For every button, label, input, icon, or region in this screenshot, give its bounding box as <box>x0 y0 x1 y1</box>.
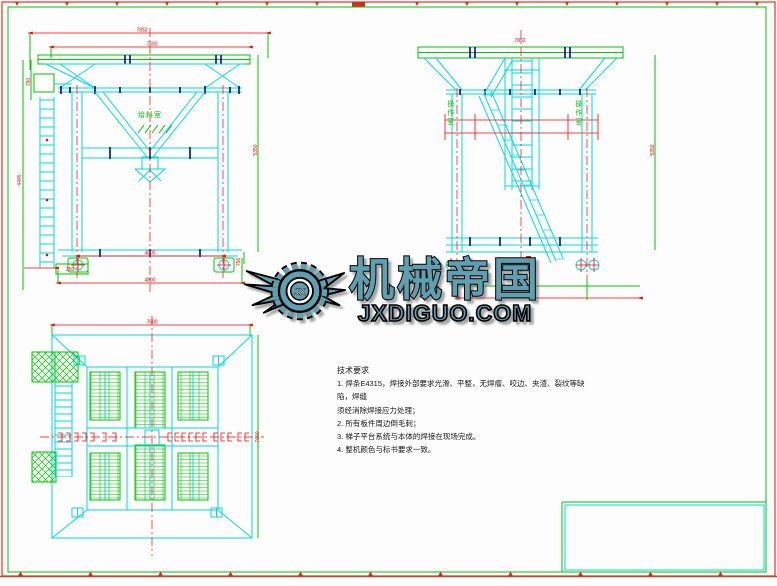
dim-side-right: 5350 <box>650 144 656 155</box>
watermark-brand-text: 机械帝国 <box>349 257 541 302</box>
dim-front-bottom-inner: 4000 <box>144 251 155 257</box>
tech-item: 4. 整机颜色与标书要求一致。 <box>337 443 597 456</box>
gear-icon: JX <box>275 266 324 315</box>
tech-item: 须经消除焊接应力处理； <box>337 404 597 417</box>
dim-front-top: 7852 <box>136 28 147 34</box>
dim-front-top-inner: 7600 <box>146 42 157 48</box>
technical-requirements-title: 技术要求 <box>337 364 597 377</box>
watermark: JX 机械帝国 JXDIGUO.COM <box>243 248 541 334</box>
dim-front-bottom-outer: 4800 <box>144 278 155 284</box>
watermark-monogram: JX <box>294 287 306 298</box>
grating-panels <box>90 372 208 500</box>
front-elevation-view: 7852 7600 <box>17 28 268 293</box>
side-room-label-right: 操作室 <box>574 100 582 146</box>
plan-view: 7600 <box>32 316 264 556</box>
side-room-label-left: 操作室 <box>446 100 454 146</box>
dim-front-right: 5350 <box>253 144 259 155</box>
dim-side-top: 7852 <box>514 38 525 44</box>
dim-front-left: 4445 <box>17 174 23 185</box>
tech-item: 2. 所有板件周边倒毛刺； <box>337 417 597 430</box>
technical-requirements: 技术要求 1. 焊条E4315，焊接外部要求光滑、平整，无焊瘤、咬边、夹渣、裂纹… <box>337 364 597 456</box>
tech-item: 3. 梯子平台系统与本体的焊接在现场完成。 <box>337 430 597 443</box>
dim-front-left-upper: 750 <box>26 78 32 87</box>
front-room-label: 给料室 <box>138 112 162 120</box>
dim-plan-right: 7600 <box>255 431 261 442</box>
dim-front-base-left: 250 <box>66 267 75 273</box>
title-block <box>562 502 766 572</box>
watermark-domain-text: JXDIGUO.COM <box>358 302 533 325</box>
checker-platform-bottom <box>32 452 56 482</box>
plan-ladder <box>55 383 72 477</box>
watermark-logo: JX <box>243 248 347 334</box>
dim-front-base-right: 750 <box>236 258 242 267</box>
front-ladder <box>40 98 54 268</box>
cad-drawing-sheet: 7852 7600 <box>0 0 777 586</box>
tech-item: 1. 焊条E4315，焊接外部要求光滑、平整，无焊瘤、咬边、夹渣、裂纹等缺陷，焊… <box>337 377 597 403</box>
